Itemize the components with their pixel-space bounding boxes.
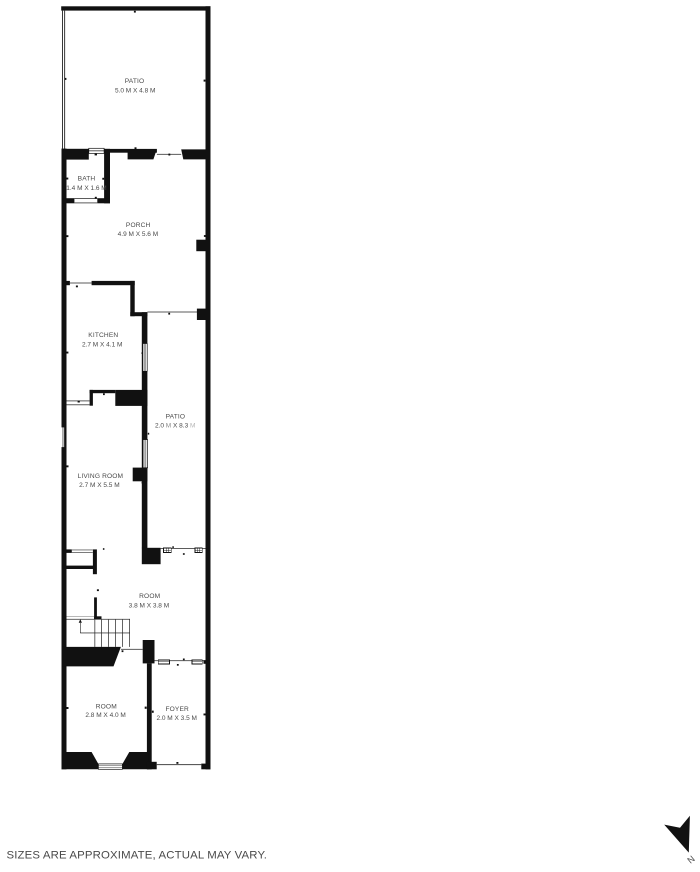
svg-text:PORCH: PORCH (126, 222, 151, 229)
svg-text:2.0 M X 8.3 M: 2.0 M X 8.3 M (155, 423, 195, 430)
svg-text:4.9 M X 5.6 M: 4.9 M X 5.6 M (118, 231, 158, 238)
svg-text:PATIO: PATIO (125, 78, 145, 85)
svg-text:PATIO: PATIO (166, 413, 186, 420)
svg-text:ROOM: ROOM (139, 593, 160, 600)
svg-text:ROOM: ROOM (96, 704, 117, 711)
svg-text:2.7 M X 4.1 M: 2.7 M X 4.1 M (82, 342, 122, 349)
svg-text:LIVING ROOM: LIVING ROOM (78, 473, 124, 480)
svg-text:BATH: BATH (78, 176, 96, 183)
svg-text:2.0 M X 3.5 M: 2.0 M X 3.5 M (156, 715, 196, 722)
svg-text:KITCHEN: KITCHEN (88, 332, 118, 339)
svg-text:3.8 M X 3.8 M: 3.8 M X 3.8 M (129, 602, 169, 609)
svg-text:1.4 M X 1.6 M: 1.4 M X 1.6 M (66, 185, 106, 192)
svg-text:2.8 M X 4.0 M: 2.8 M X 4.0 M (85, 712, 125, 719)
svg-text:2.7 M X 5.5 M: 2.7 M X 5.5 M (79, 482, 119, 489)
svg-text:FOYER: FOYER (165, 706, 189, 713)
svg-text:SIZES ARE APPROXIMATE, ACTUAL: SIZES ARE APPROXIMATE, ACTUAL MAY VARY. (7, 850, 268, 862)
svg-text:5.0 M X 4.8 M: 5.0 M X 4.8 M (115, 87, 155, 94)
